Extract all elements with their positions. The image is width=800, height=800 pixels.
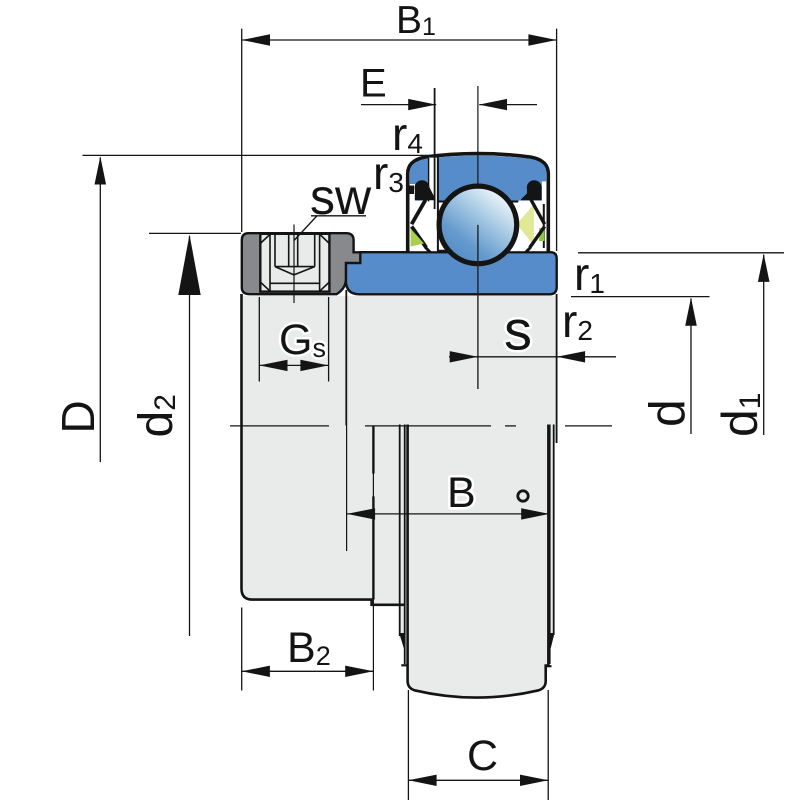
svg-text:s: s xyxy=(504,299,532,362)
svg-text:D: D xyxy=(52,400,104,433)
svg-text:sw: sw xyxy=(310,169,372,225)
svg-text:d: d xyxy=(640,399,696,427)
svg-text:E: E xyxy=(360,62,387,106)
svg-text:B: B xyxy=(447,469,476,517)
svg-text:C: C xyxy=(467,732,498,780)
